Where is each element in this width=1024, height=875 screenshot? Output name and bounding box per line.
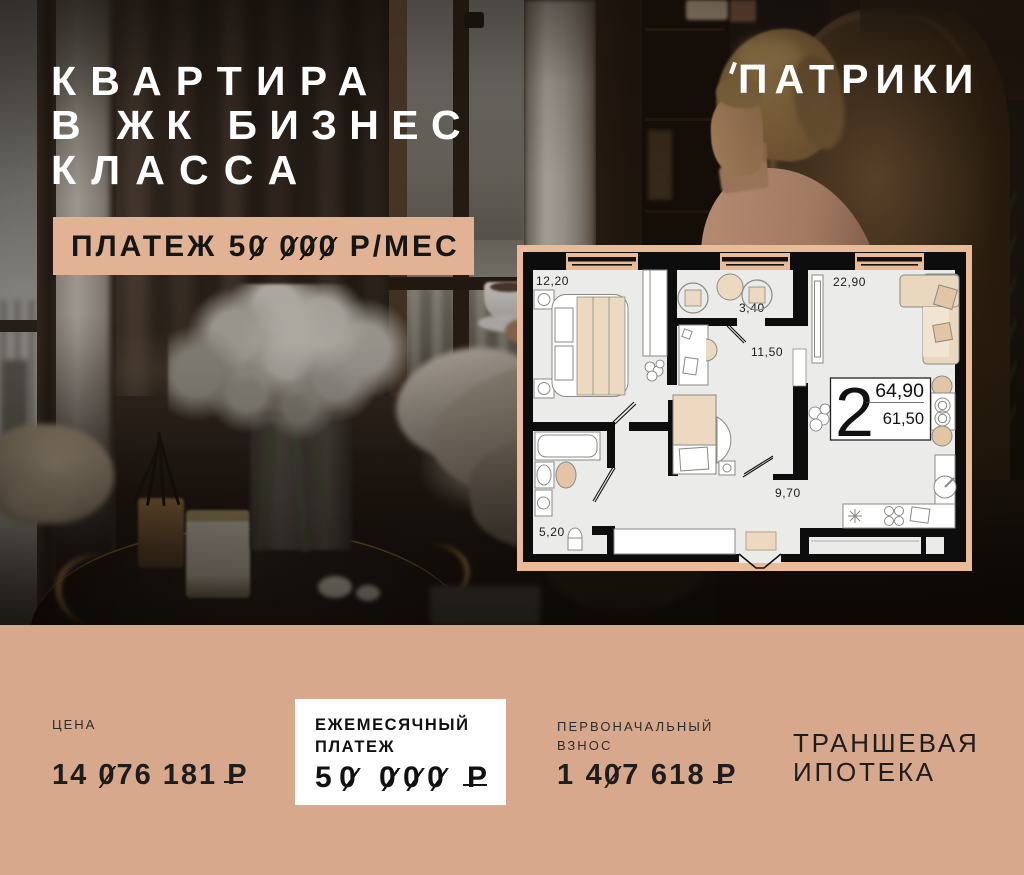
svg-text:9,70: 9,70 — [775, 486, 801, 500]
svg-text:22,90: 22,90 — [833, 275, 866, 289]
svg-text:61,50: 61,50 — [883, 410, 924, 428]
svg-text:12,20: 12,20 — [536, 274, 569, 288]
svg-text:5,20: 5,20 — [539, 525, 565, 539]
svg-text:64,90: 64,90 — [875, 380, 924, 402]
svg-text:11,50: 11,50 — [751, 345, 783, 359]
svg-text:2: 2 — [835, 373, 874, 451]
